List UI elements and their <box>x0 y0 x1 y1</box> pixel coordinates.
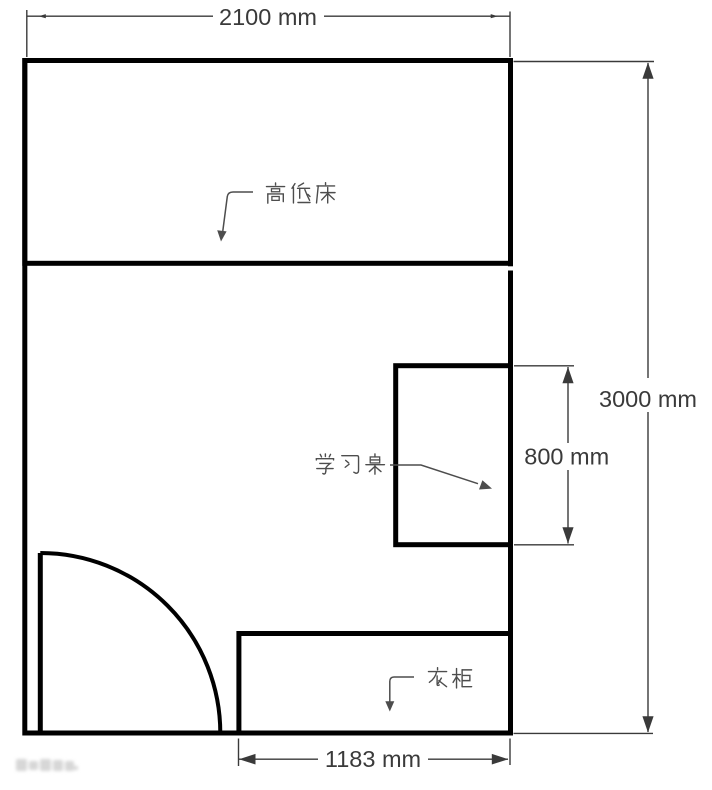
svg-text:3000 mm: 3000 mm <box>599 386 697 412</box>
svg-text:1183 mm: 1183 mm <box>325 746 421 772</box>
svg-text:2100 mm: 2100 mm <box>219 4 317 30</box>
svg-text:800 mm: 800 mm <box>524 444 609 470</box>
